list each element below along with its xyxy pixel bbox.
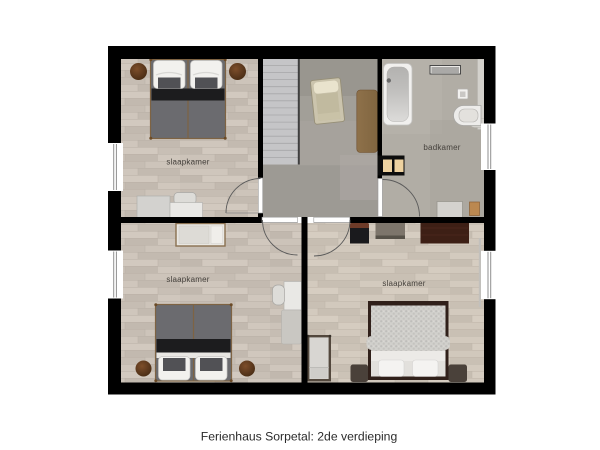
svg-text:slaapkamer: slaapkamer bbox=[166, 157, 209, 166]
svg-text:Ferienhaus Sorpetal: 2de verdi: Ferienhaus Sorpetal: 2de verdieping bbox=[201, 430, 397, 444]
svg-text:slaapkamer: slaapkamer bbox=[382, 279, 425, 288]
svg-text:slaapkamer: slaapkamer bbox=[166, 275, 209, 284]
svg-text:badkamer: badkamer bbox=[423, 143, 460, 152]
